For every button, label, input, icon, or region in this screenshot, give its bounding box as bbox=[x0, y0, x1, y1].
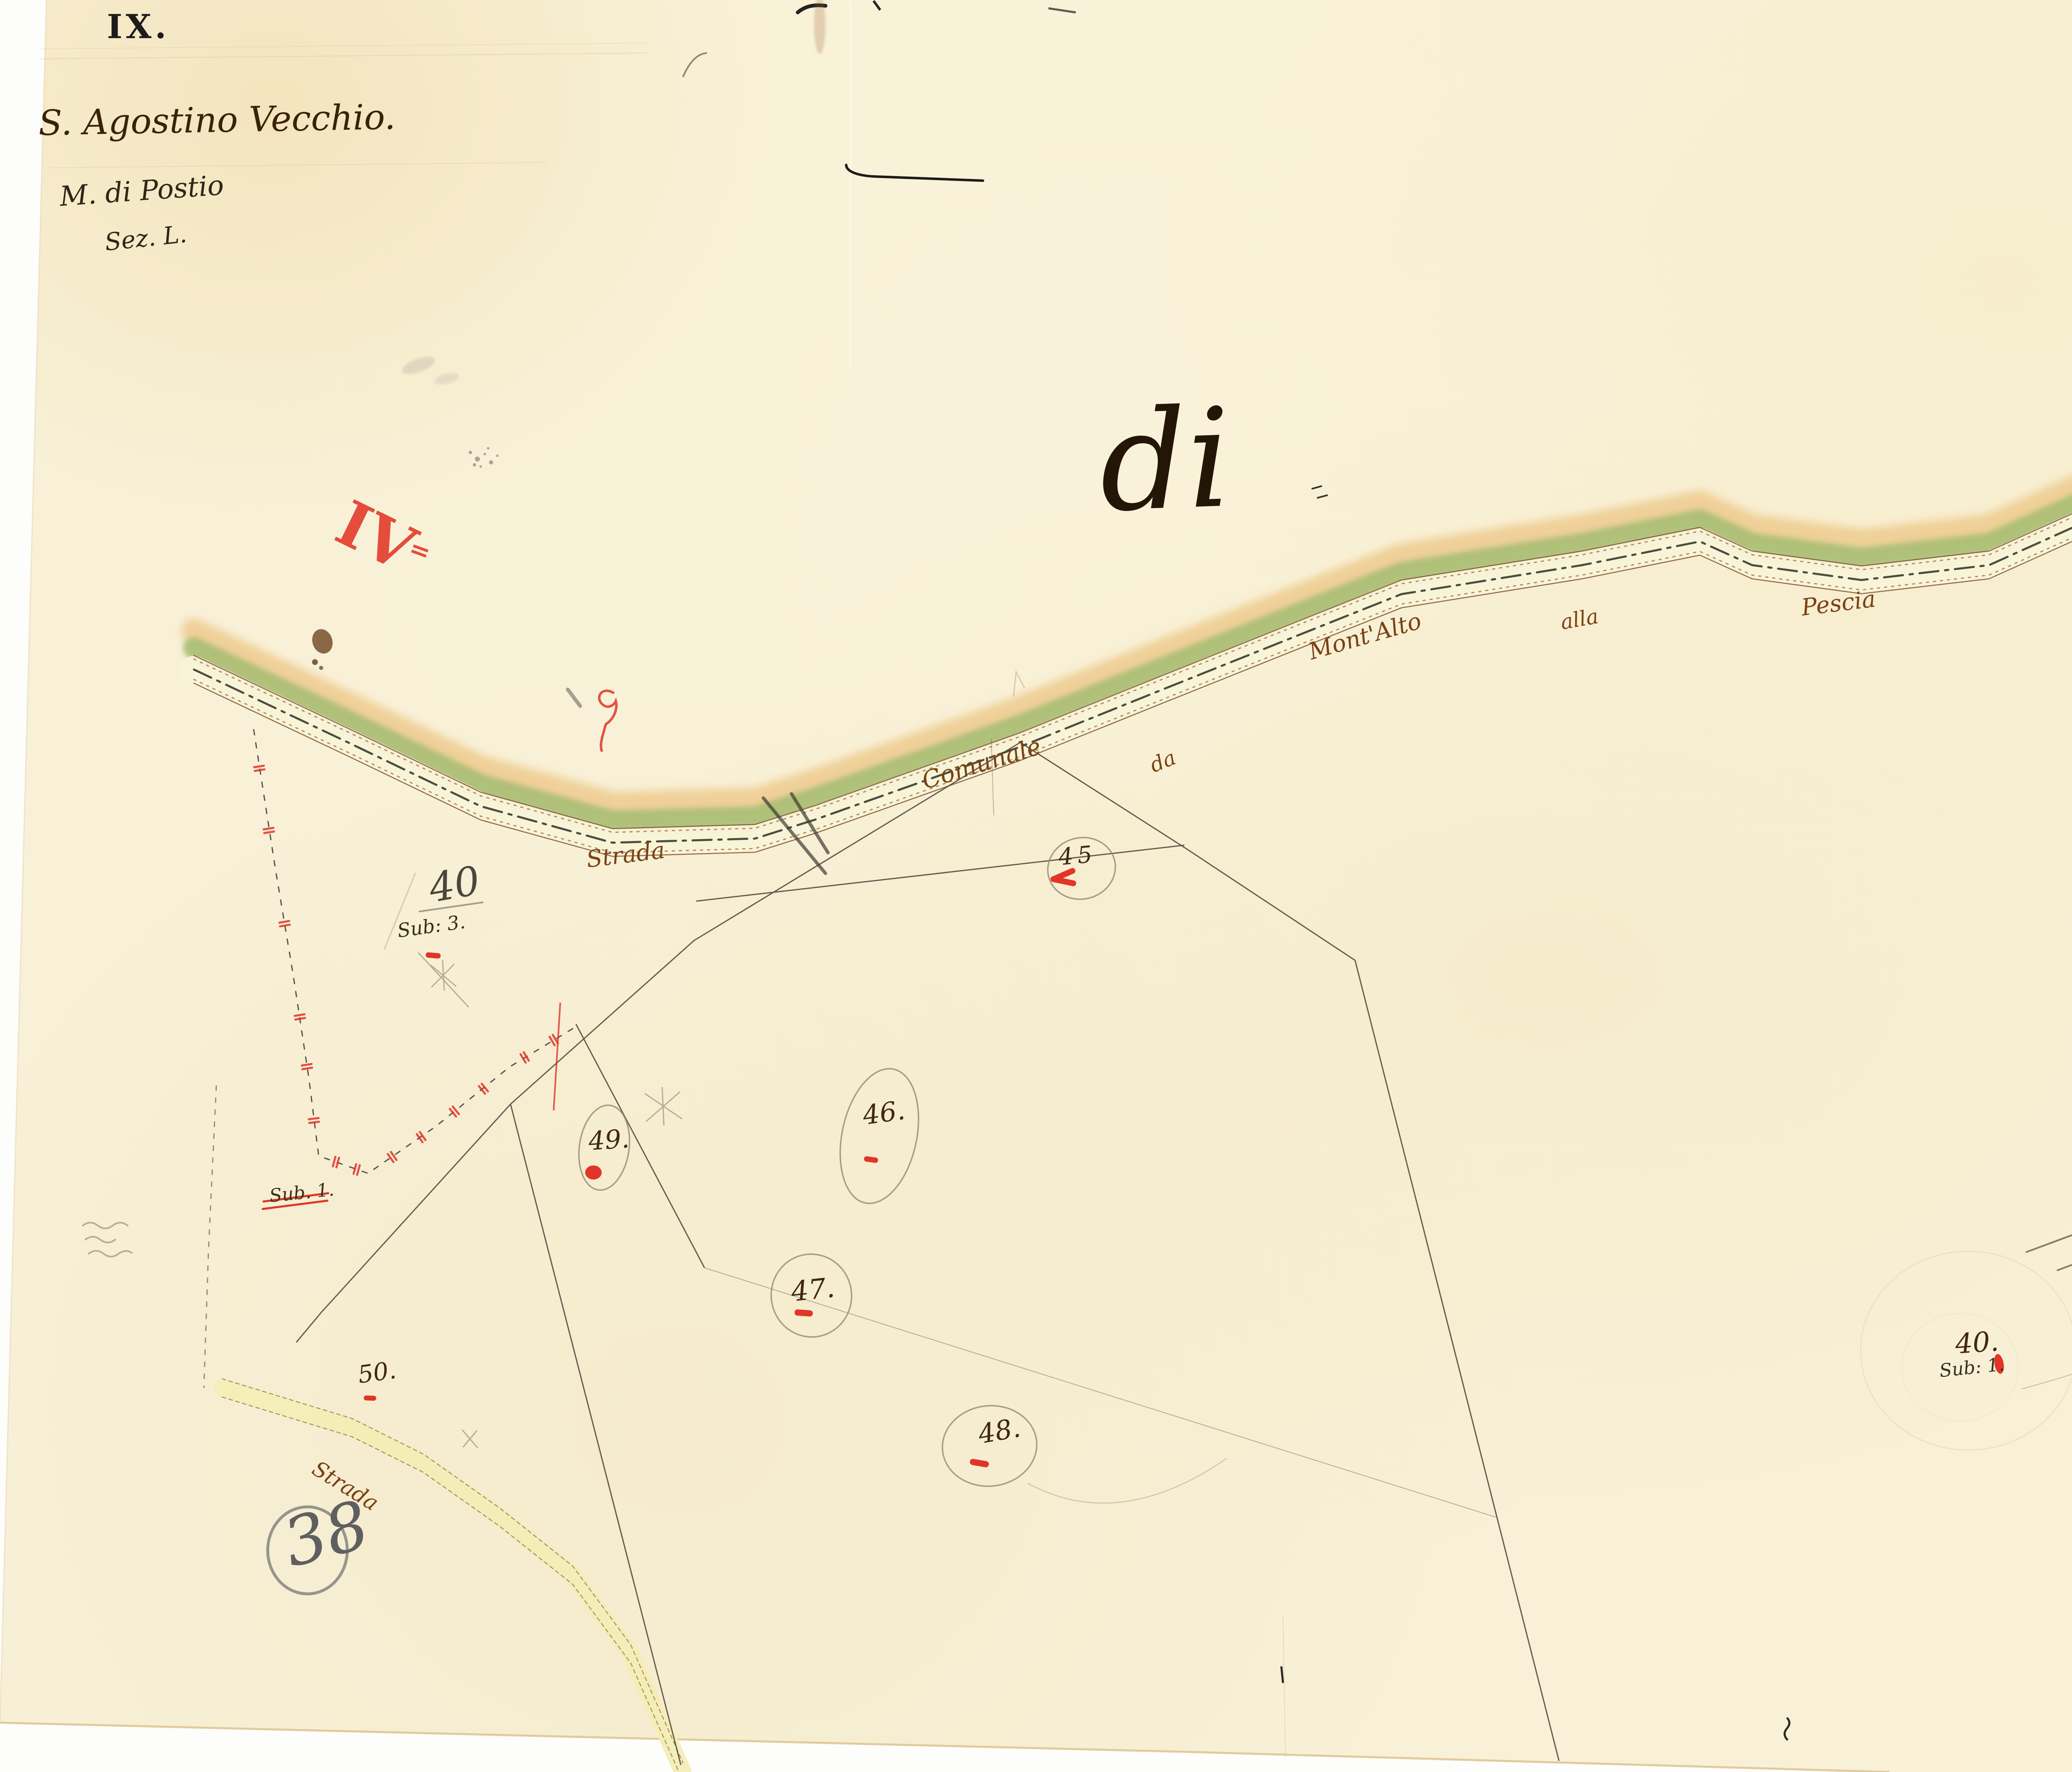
red-parcel-marks bbox=[364, 871, 2005, 1468]
map-title: S. Agostino Vecchio. bbox=[38, 99, 396, 140]
parcel-number-40-sub1: 40. bbox=[1954, 1328, 1999, 1358]
parcel-circles bbox=[574, 830, 1227, 1503]
red-b-mark bbox=[599, 691, 616, 751]
hatching-marks bbox=[2022, 1219, 2072, 1430]
parcel-number-40-sub3: 40 bbox=[426, 861, 483, 909]
paper-texture-lines bbox=[39, 0, 1285, 1757]
parcel-number-49: 49. bbox=[588, 1126, 630, 1154]
red-boundary-segment bbox=[554, 1003, 560, 1110]
parcel-number-48: 48. bbox=[976, 1414, 1022, 1448]
adjacent-sheet-number: 38 bbox=[277, 1491, 375, 1577]
sheet-number: IX. bbox=[107, 10, 169, 43]
parcel-boundaries bbox=[296, 738, 1559, 1765]
parcel-number-45: 45 bbox=[1058, 843, 1097, 869]
ink-marks bbox=[309, 0, 1789, 1740]
secondary-road bbox=[222, 1379, 683, 1772]
parcel-number-47: 47. bbox=[790, 1274, 836, 1306]
large-script-word: di bbox=[1097, 390, 1233, 531]
scanned-map-canvas: IX. S. Agostino Vecchio. M. di Postio Se… bbox=[0, 0, 2072, 1772]
road-label-alla: alla bbox=[1559, 606, 1600, 633]
parcel-number-46: 46. bbox=[861, 1097, 907, 1129]
parcel-number-50: 50. bbox=[356, 1358, 397, 1387]
